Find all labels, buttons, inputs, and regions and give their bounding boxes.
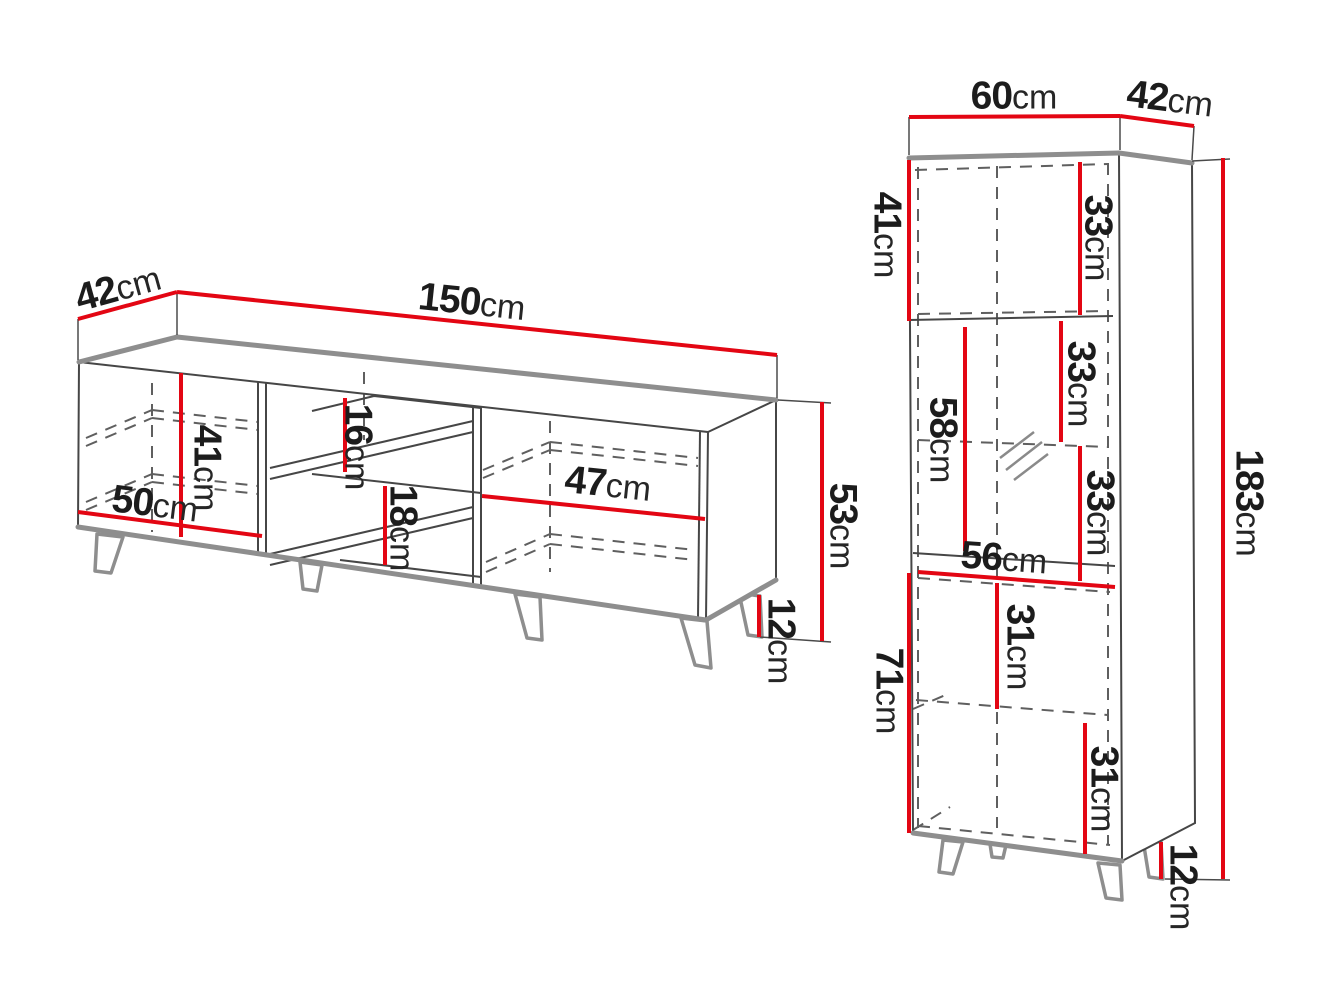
dim-tv-body-height: 53cm (824, 483, 863, 570)
dim-cabinet-total-height: 183cm (1230, 449, 1269, 556)
dim-cabinet-shelf-3: 33cm (1081, 470, 1120, 557)
dim-cabinet-lower-shelf-1: 31cm (1001, 604, 1040, 691)
dim-cabinet-top-section: 41cm (868, 192, 907, 279)
dim-tv-shelf-upper: 16cm (339, 404, 378, 491)
dim-cabinet-leg-height: 12cm (1164, 844, 1203, 931)
dim-cabinet-lower-shelf-2: 31cm (1085, 746, 1124, 833)
furniture-dimension-diagram: 42cm 150cm 41cm 50cm 16cm 18cm 47cm 53cm… (0, 0, 1337, 1002)
dim-tv-shelf-lower: 18cm (384, 485, 423, 572)
dim-cabinet-glass-door: 58cm (924, 397, 963, 484)
dim-cabinet-width: 60cm (971, 77, 1058, 116)
dim-cabinet-lower-width: 56cm (959, 536, 1048, 581)
display-cabinet-drawing (909, 116, 1230, 900)
dim-tv-right-comp-width: 47cm (563, 460, 653, 508)
cabinet-body (909, 153, 1195, 861)
dim-cabinet-lower-height: 71cm (870, 648, 909, 735)
dim-cabinet-shelf-1: 33cm (1079, 195, 1118, 282)
dim-cabinet-shelf-2: 33cm (1062, 341, 1101, 428)
dim-tv-leg-height: 12cm (762, 598, 801, 685)
